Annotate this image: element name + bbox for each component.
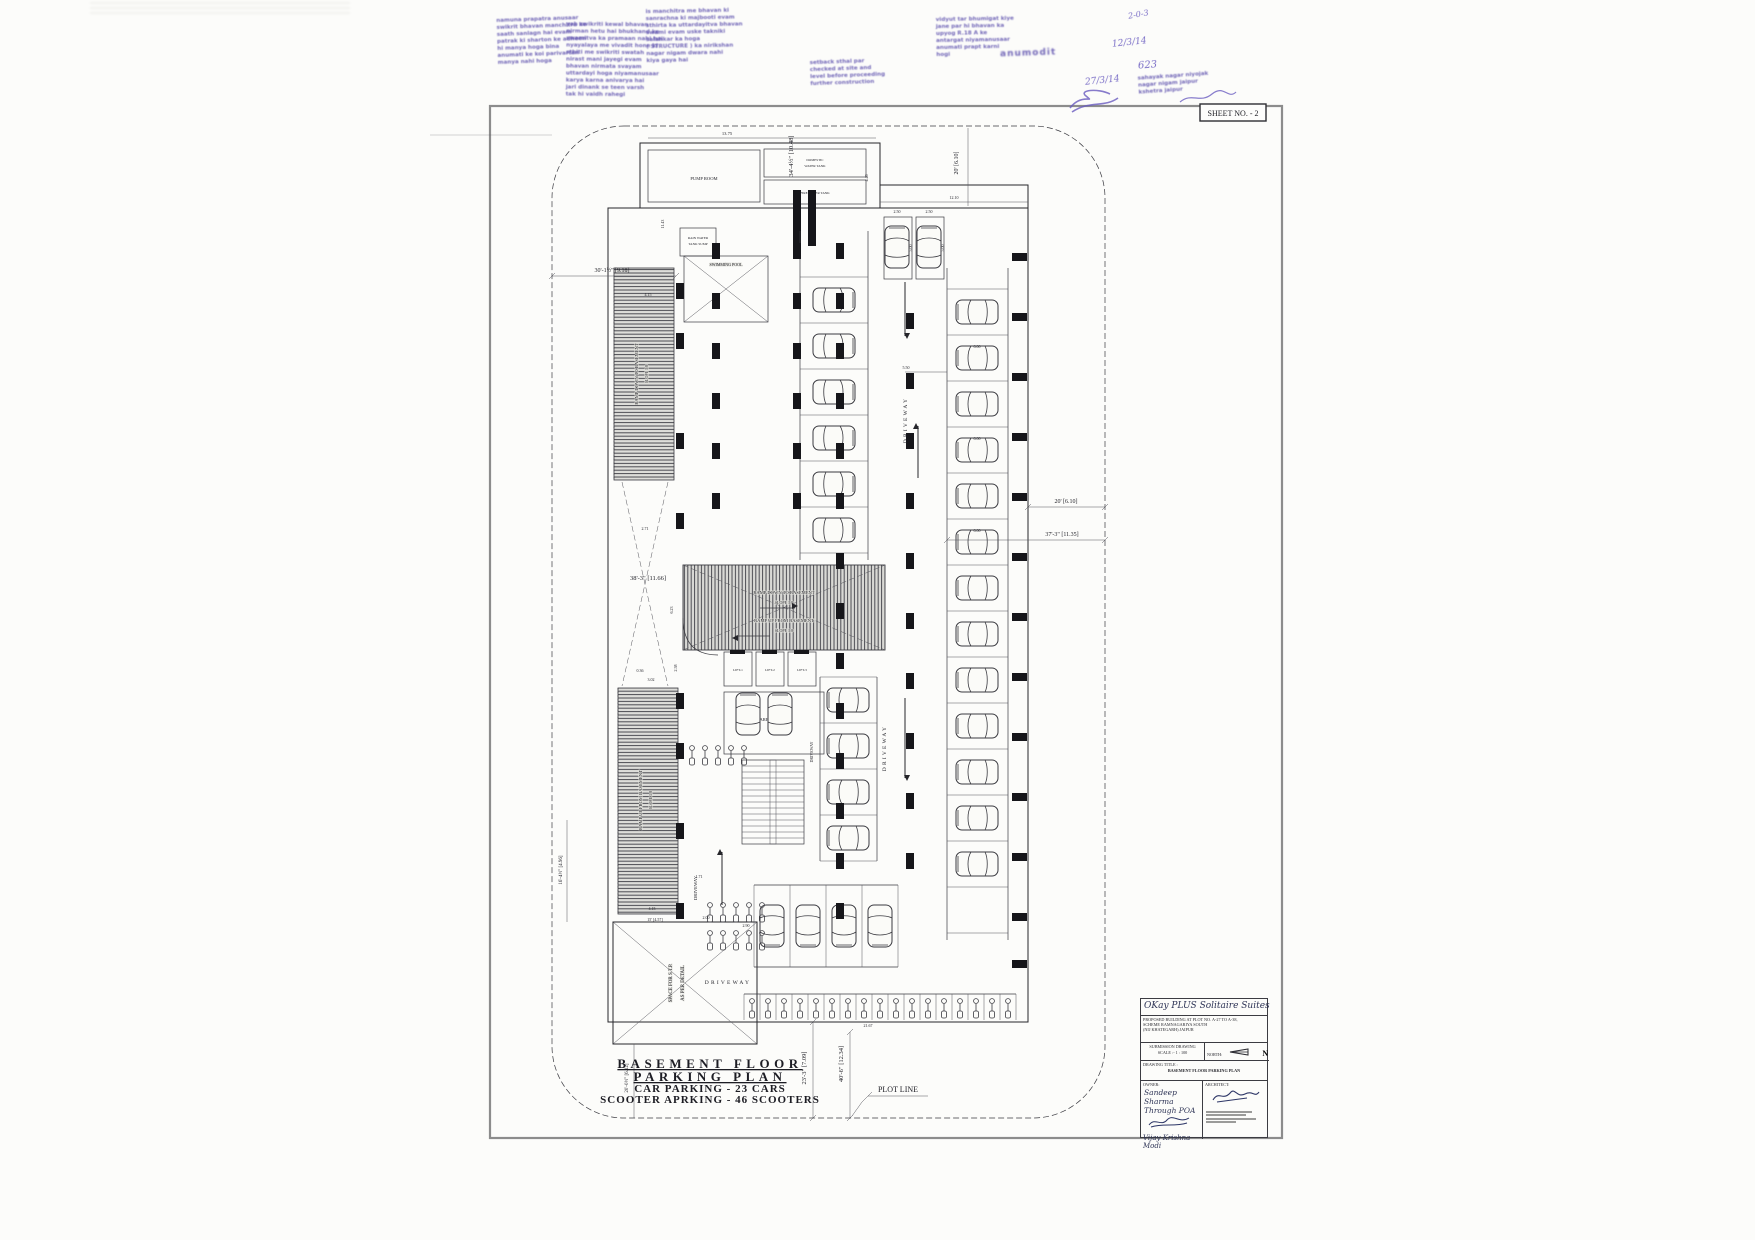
- column-block: [836, 443, 844, 459]
- scooter-icon: [720, 931, 725, 950]
- scooter-icon: [749, 999, 754, 1018]
- dim-13-75: 13.75: [722, 131, 733, 136]
- scooter-icon: [765, 999, 770, 1018]
- column-block: [793, 243, 801, 259]
- ramp-down-label-c: RAMP DOWN TO BASEMENT: [753, 590, 814, 595]
- column-block: [793, 293, 801, 309]
- sheet-number: SHEET NO. - 2: [1208, 109, 1259, 118]
- column-block: [906, 493, 914, 509]
- architect-address-line: [1206, 1114, 1246, 1116]
- caption-line-2: PARKING PLAN: [633, 1069, 786, 1084]
- stamp-paragraph-3: is manchitra me bhavan kisanrachna ki ma…: [646, 7, 773, 65]
- gate-shutter: [808, 190, 816, 246]
- dim-5-00: 5.00: [908, 245, 913, 252]
- stamp-paragraph-4: setback sthal parchecked at site andleve…: [810, 56, 933, 88]
- owner-sign-name: Vijay Krishna Modi: [1141, 1134, 1202, 1150]
- scooter-icon: [925, 999, 930, 1018]
- utility-rooms: PUMP ROOM DOMESTIC WATER TANK FIRE WATER…: [648, 149, 866, 256]
- scooter-icon: [707, 931, 712, 950]
- architect-signature: [1207, 1088, 1263, 1104]
- dim-4-15: 4.15: [645, 292, 652, 297]
- column-block: [906, 853, 914, 869]
- scooter-icon: [733, 931, 738, 950]
- column-block: [1012, 493, 1027, 501]
- dim-12-10: 12.10: [950, 195, 959, 200]
- car-icon: [917, 226, 941, 268]
- dim-3-02: 3.02: [648, 677, 655, 682]
- car-icon: [956, 852, 998, 876]
- scooter-icon: [845, 999, 850, 1018]
- ramp-slope-label-v2: SLOPE 1:8: [648, 791, 653, 809]
- column-block: [712, 343, 720, 359]
- scale-label: SCALE :- 1 : 100: [1141, 1050, 1204, 1056]
- dim-2-50: 2.50: [894, 209, 901, 214]
- dim-37-3: 37'-3" [11.35]: [1045, 532, 1078, 538]
- column-block: [676, 823, 684, 839]
- drawing-caption: BASEMENT FLOOR PARKING PLAN CAR PARKING …: [600, 1056, 820, 1106]
- column-block: [836, 653, 844, 669]
- car-icon: [956, 392, 998, 416]
- architect-label: ARCHITECT:: [1203, 1081, 1269, 1088]
- title-block: OKay PLUS Solitaire Suites PROPOSED BUIL…: [1140, 998, 1268, 1138]
- scooter-icon: [733, 903, 738, 922]
- pump-room-label: PUMP ROOM: [690, 176, 717, 181]
- domestic-tank-label-1: DOMESTIC: [806, 158, 824, 162]
- submission-drawing-label: SUBMISSION DRAWING: [1141, 1043, 1204, 1050]
- scooter-icon: [715, 746, 720, 765]
- floor-plan-drawing: SHEET NO. - 2 PUMP ROOM DOMESTIC WATER T…: [0, 0, 1755, 1240]
- ramp-slope-label-c1: SLOPE 1:8: [775, 600, 793, 605]
- car-icon: [956, 346, 998, 370]
- car-icon: [956, 714, 998, 738]
- owner-name: Sandeep Sharma: [1141, 1088, 1202, 1106]
- lift-1-label: LIFT-1: [733, 668, 743, 672]
- column-block: [1012, 913, 1027, 921]
- column-block: [676, 433, 684, 449]
- column-block: [906, 733, 914, 749]
- scooter-icon: [689, 746, 694, 765]
- column-block: [836, 493, 844, 509]
- car-icon: [768, 693, 792, 735]
- dim-4-46: 4.46: [864, 175, 869, 182]
- column-block: [906, 313, 914, 329]
- column-block: [836, 903, 844, 919]
- column-block: [1012, 433, 1027, 441]
- column-block: [906, 373, 914, 389]
- column-block: [836, 243, 844, 259]
- stp-label-1: SPACE FOR S.T.P.: [669, 964, 674, 1003]
- dim-15ft: 15' [4.57]: [647, 917, 663, 922]
- architect-address-line: [1206, 1118, 1256, 1120]
- dim-1-71: 1.71: [696, 874, 703, 879]
- car-icon: [813, 426, 855, 450]
- column-block: [1012, 253, 1027, 261]
- car-icon: [796, 905, 820, 947]
- column-block: [906, 613, 914, 629]
- ramp-slope-label-v: SLOPE 1:8: [644, 365, 649, 383]
- scooter-icon: [941, 999, 946, 1018]
- car-icon: [885, 226, 909, 268]
- car-icon: [813, 518, 855, 542]
- caption-line-4: SCOOTER APRKING - 46 SCOOTERS: [600, 1094, 820, 1106]
- project-name: OKay PLUS Solitaire Suites: [1141, 999, 1267, 1013]
- column-block: [1012, 793, 1027, 801]
- scooter-icon: [957, 999, 962, 1018]
- dim-0-36: 0.36: [637, 668, 644, 673]
- drawing-title-label: DRAWING TITLE :: [1141, 1061, 1267, 1068]
- scooter-icon: [877, 999, 882, 1018]
- swimming-pool: SWIMMING POOL: [684, 256, 768, 322]
- column-block: [1012, 960, 1027, 968]
- column-block: [676, 693, 684, 709]
- column-block: [836, 343, 844, 359]
- dim-34-4: 34'-4½" [10.48]: [788, 135, 795, 176]
- column-block: [906, 793, 914, 809]
- architect-address-line: [1206, 1111, 1252, 1113]
- dim-6-00: 6.00: [974, 436, 981, 441]
- lift-2-label: LIFT-2: [765, 668, 775, 672]
- plot-line-label: PLOT LINE: [878, 1085, 918, 1094]
- car-icon: [868, 905, 892, 947]
- car-icon: [827, 688, 869, 712]
- car-icon: [736, 693, 760, 735]
- scooter-icon: [728, 746, 733, 765]
- dim-4-15-stp: 4.15: [649, 906, 656, 911]
- column-block: [676, 903, 684, 919]
- dim-2-71: 2.71: [642, 526, 649, 531]
- ramp-slope-label-c2: SLOPE 1:8: [775, 628, 793, 633]
- rain-sump-label-1: RAIN WATER: [688, 236, 709, 240]
- column-block: [836, 293, 844, 309]
- car-icon: [956, 530, 998, 554]
- ramp-up-label-c: RAMP UP FROM BASEMENT: [754, 618, 814, 623]
- driveway-label: DRIVEWAY: [903, 397, 909, 443]
- car-icon: [956, 760, 998, 784]
- car-icon: [956, 484, 998, 508]
- column-block: [676, 333, 684, 349]
- car-icon: [760, 905, 784, 947]
- north-arrow-icon: [1228, 1047, 1258, 1057]
- car-icon: [813, 380, 855, 404]
- scooter-icon: [813, 999, 818, 1018]
- dim-30-1: 30'-1½" [9.18]: [594, 267, 629, 274]
- central-ramp: RAMP DOWN TO BASEMENT SLOPE 1:8 RAMP UP …: [683, 565, 885, 650]
- dim-20-top: 20' [6.10]: [954, 151, 960, 174]
- ramp-slope-x: [622, 482, 668, 686]
- car-icon: [827, 734, 869, 758]
- car-icon: [827, 826, 869, 850]
- column-block: [712, 243, 720, 259]
- column-block: [793, 443, 801, 459]
- scooter-icon: [909, 999, 914, 1018]
- column-block: [676, 743, 684, 759]
- column-block: [1012, 673, 1027, 681]
- column-block: [1012, 553, 1027, 561]
- scooter-icon: [720, 903, 725, 922]
- stamp-handwritten-3: 623: [1138, 59, 1158, 71]
- driveway-label: DRIVEWAY: [882, 725, 888, 771]
- column-block: [712, 393, 720, 409]
- dim-2-50: 2.50: [926, 209, 933, 214]
- ramp-down-label-v: RAMP DOWN TO BASEMENT: [634, 343, 639, 404]
- column-block: [1012, 853, 1027, 861]
- dim-6-00: 6.00: [974, 528, 981, 533]
- lift-3-label: LIFT-3: [797, 668, 807, 672]
- column-block: [1012, 613, 1027, 621]
- driveway-label: DRIVEWAY: [809, 741, 814, 762]
- owner-label: OWNER:: [1141, 1081, 1202, 1088]
- scanned-drawing-page: SHEET NO. - 2 PUMP ROOM DOMESTIC WATER T…: [0, 0, 1755, 1240]
- column-block: [712, 443, 720, 459]
- scooter-icon: [797, 999, 802, 1018]
- owner-through: Through POA: [1141, 1106, 1202, 1115]
- column-block: [676, 283, 684, 299]
- ramp-up-label-v: RAMP UP FROM BASEMENT: [638, 770, 643, 830]
- scooter-icon: [1005, 999, 1010, 1018]
- column-block: [1012, 313, 1027, 321]
- plot-line-callout: PLOT LINE: [852, 1085, 928, 1116]
- car-icon: [827, 780, 869, 804]
- column-block: [793, 493, 801, 509]
- column-block: [793, 343, 801, 359]
- rain-sump-label-2: TANK SUMP: [688, 242, 707, 246]
- scooter-icon: [989, 999, 994, 1018]
- scooter-icon: [973, 999, 978, 1018]
- dim-5-50: 5.50: [903, 365, 910, 370]
- scooter-icon: [746, 903, 751, 922]
- column-block: [712, 293, 720, 309]
- dim-6-23: 6.23: [669, 607, 674, 614]
- dim-2-58: 2.58: [673, 665, 678, 672]
- dim-16-4: 16'-4½" [4.96]: [559, 855, 564, 885]
- ramp-strip-upper: RAMP DOWN TO BASEMENT SLOPE 1:8: [614, 268, 674, 480]
- north-letter: N: [1262, 1049, 1268, 1058]
- column-block: [1012, 373, 1027, 381]
- column-block: [836, 853, 844, 869]
- domestic-tank-label-2: WATER TANK: [804, 164, 826, 168]
- column-block: [1012, 733, 1027, 741]
- column-block: [793, 393, 801, 409]
- stp-label-2: AS PER DETAIL: [681, 965, 686, 1001]
- column-block: [836, 803, 844, 819]
- scooter-icon: [829, 999, 834, 1018]
- column-block: [836, 393, 844, 409]
- column-block: [676, 513, 684, 529]
- car-icon: [956, 300, 998, 324]
- scooter-icon: [781, 999, 786, 1018]
- column-block: [906, 553, 914, 569]
- dim-38-3: 38'-3" [11.66]: [630, 575, 666, 582]
- car-icon: [813, 472, 855, 496]
- car-icon: [956, 622, 998, 646]
- column-block: [712, 493, 720, 509]
- column-block: [906, 673, 914, 689]
- car-icon: [813, 288, 855, 312]
- car-icon: [956, 668, 998, 692]
- drawing-title: BASEMENT FLOOR PARKING PLAN: [1141, 1068, 1267, 1074]
- car-icon: [956, 576, 998, 600]
- dim-2-90: 2.90: [743, 923, 750, 928]
- swimming-pool-label: SWIMMING POOL: [710, 262, 744, 267]
- column-block: [836, 703, 844, 719]
- column-block: [836, 753, 844, 769]
- dim-5-00: 5.00: [940, 245, 945, 252]
- driveway-labels: DRIVEWAY DRIVEWAY DRIVEWAY DRIVEWAY DRIV…: [693, 397, 909, 986]
- dim-11-43: 11.43: [660, 220, 665, 229]
- car-icon: [813, 334, 855, 358]
- dim-40-6: 40'-6" [12.34]: [838, 1046, 845, 1082]
- car-icon: [956, 806, 998, 830]
- dim-6-00: 6.00: [974, 344, 981, 349]
- scooter-icon: [702, 746, 707, 765]
- scooter-icon: [746, 931, 751, 950]
- dim-20-right: 20' [6.10]: [1054, 499, 1077, 505]
- north-label: NORTH:: [1205, 1051, 1224, 1058]
- owner-signature: [1145, 1115, 1195, 1129]
- column-block: [836, 603, 844, 619]
- architect-address-line: [1206, 1121, 1236, 1123]
- dim-2-00: 2.00: [703, 915, 710, 920]
- ramp-strip-lower: RAMP UP FROM BASEMENT SLOPE 1:8: [618, 688, 678, 914]
- sheet-number-box: SHEET NO. - 2: [1200, 104, 1266, 121]
- scooter-icon: [861, 999, 866, 1018]
- driveway-label: DRIVEWAY: [705, 980, 751, 986]
- scooter-icon: [893, 999, 898, 1018]
- car-icon: [956, 438, 998, 462]
- project-address-3: (NIJ KHATEGARH) JAIPUR: [1141, 1027, 1267, 1033]
- column-block: [836, 553, 844, 569]
- dim-21-67: 21.67: [864, 1023, 873, 1028]
